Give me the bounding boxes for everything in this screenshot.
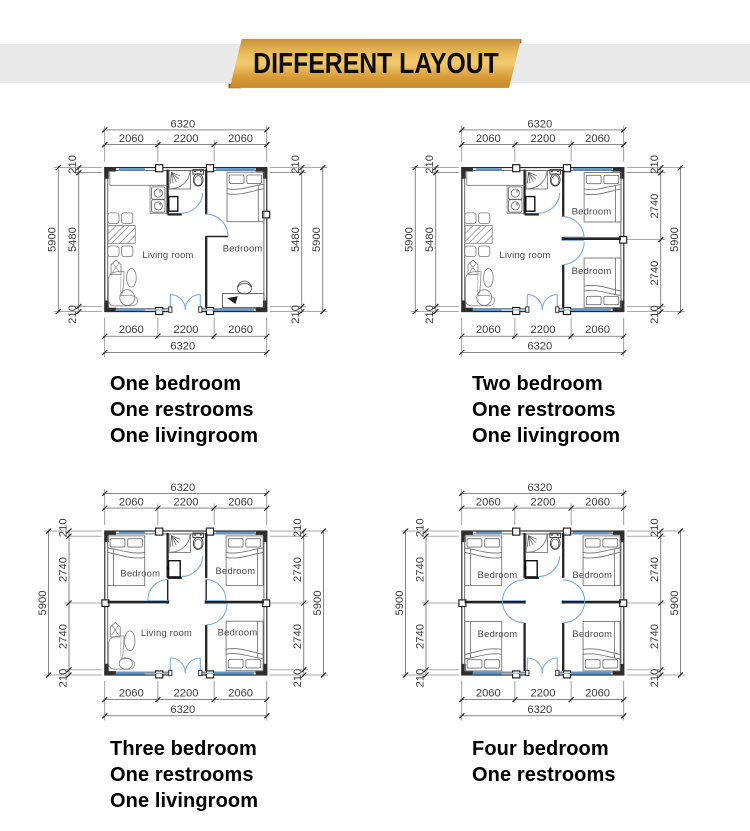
- svg-text:2200: 2200: [531, 497, 556, 509]
- svg-text:Bedroom: Bedroom: [120, 568, 160, 579]
- svg-text:210: 210: [414, 669, 426, 688]
- svg-text:2200: 2200: [174, 133, 199, 145]
- svg-text:2200: 2200: [174, 688, 199, 700]
- svg-text:Bedroom: Bedroom: [572, 569, 612, 580]
- svg-text:2740: 2740: [649, 624, 661, 649]
- svg-text:210: 210: [424, 155, 436, 174]
- svg-text:2060: 2060: [476, 324, 501, 336]
- svg-text:210: 210: [57, 518, 69, 537]
- svg-text:5900: 5900: [311, 227, 323, 252]
- svg-text:Bedroom: Bedroom: [223, 243, 263, 254]
- svg-text:2060: 2060: [119, 133, 144, 145]
- svg-text:6320: 6320: [170, 341, 195, 353]
- svg-text:2060: 2060: [476, 497, 501, 509]
- svg-text:Bedroom: Bedroom: [572, 265, 612, 276]
- svg-text:2740: 2740: [649, 557, 661, 582]
- svg-text:5900: 5900: [312, 591, 324, 616]
- svg-text:210: 210: [67, 305, 79, 324]
- svg-text:5900: 5900: [47, 227, 59, 252]
- svg-text:6320: 6320: [527, 704, 552, 716]
- svg-text:6320: 6320: [170, 482, 195, 494]
- svg-text:5480: 5480: [424, 227, 436, 252]
- svg-text:5480: 5480: [67, 227, 79, 252]
- svg-text:2200: 2200: [531, 324, 556, 336]
- svg-text:210: 210: [292, 669, 304, 688]
- svg-text:210: 210: [292, 518, 304, 537]
- svg-text:2740: 2740: [649, 261, 661, 286]
- svg-text:2060: 2060: [585, 688, 610, 700]
- svg-text:2740: 2740: [57, 557, 69, 582]
- svg-text:2740: 2740: [292, 557, 304, 582]
- svg-text:210: 210: [649, 155, 661, 174]
- svg-text:2060: 2060: [119, 324, 144, 336]
- svg-text:5900: 5900: [404, 227, 416, 252]
- svg-text:Bedroom: Bedroom: [216, 565, 256, 576]
- svg-text:6320: 6320: [527, 341, 552, 353]
- svg-text:2740: 2740: [414, 557, 426, 582]
- svg-text:2060: 2060: [228, 688, 253, 700]
- svg-text:2060: 2060: [585, 324, 610, 336]
- svg-text:2060: 2060: [476, 688, 501, 700]
- svg-text:210: 210: [57, 669, 69, 688]
- svg-text:Bedroom: Bedroom: [572, 628, 612, 639]
- svg-text:2200: 2200: [174, 324, 199, 336]
- svg-text:2060: 2060: [476, 133, 501, 145]
- svg-text:2060: 2060: [228, 324, 253, 336]
- svg-text:Bedroom: Bedroom: [478, 628, 518, 639]
- svg-text:Bedroom: Bedroom: [572, 206, 612, 217]
- svg-text:5900: 5900: [669, 591, 681, 616]
- svg-text:6320: 6320: [170, 119, 195, 131]
- svg-text:5480: 5480: [290, 227, 302, 252]
- svg-text:2200: 2200: [174, 497, 199, 509]
- svg-text:210: 210: [649, 669, 661, 688]
- svg-text:210: 210: [290, 305, 302, 324]
- svg-text:5900: 5900: [394, 591, 406, 616]
- svg-text:2060: 2060: [119, 688, 144, 700]
- svg-text:2060: 2060: [119, 497, 144, 509]
- svg-text:5900: 5900: [37, 591, 49, 616]
- svg-text:210: 210: [290, 155, 302, 174]
- svg-text:2740: 2740: [57, 624, 69, 649]
- svg-text:6320: 6320: [527, 119, 552, 131]
- svg-text:210: 210: [424, 305, 436, 324]
- svg-text:2740: 2740: [414, 624, 426, 649]
- svg-text:Bedroom: Bedroom: [218, 627, 258, 638]
- svg-text:Living room: Living room: [141, 627, 192, 638]
- svg-text:210: 210: [414, 518, 426, 537]
- svg-text:2200: 2200: [531, 133, 556, 145]
- svg-text:Bedroom: Bedroom: [478, 569, 518, 580]
- svg-text:Living room: Living room: [499, 249, 550, 260]
- svg-text:6320: 6320: [527, 482, 552, 494]
- svg-text:2060: 2060: [585, 133, 610, 145]
- svg-text:6320: 6320: [170, 704, 195, 716]
- svg-text:Living room: Living room: [142, 249, 193, 260]
- svg-text:2200: 2200: [531, 688, 556, 700]
- svg-text:2740: 2740: [649, 194, 661, 219]
- svg-text:210: 210: [649, 518, 661, 537]
- svg-text:2060: 2060: [228, 133, 253, 145]
- svg-text:2740: 2740: [292, 624, 304, 649]
- svg-text:210: 210: [649, 305, 661, 324]
- svg-text:2060: 2060: [585, 497, 610, 509]
- svg-text:2060: 2060: [228, 497, 253, 509]
- svg-text:5900: 5900: [669, 227, 681, 252]
- svg-text:210: 210: [67, 155, 79, 174]
